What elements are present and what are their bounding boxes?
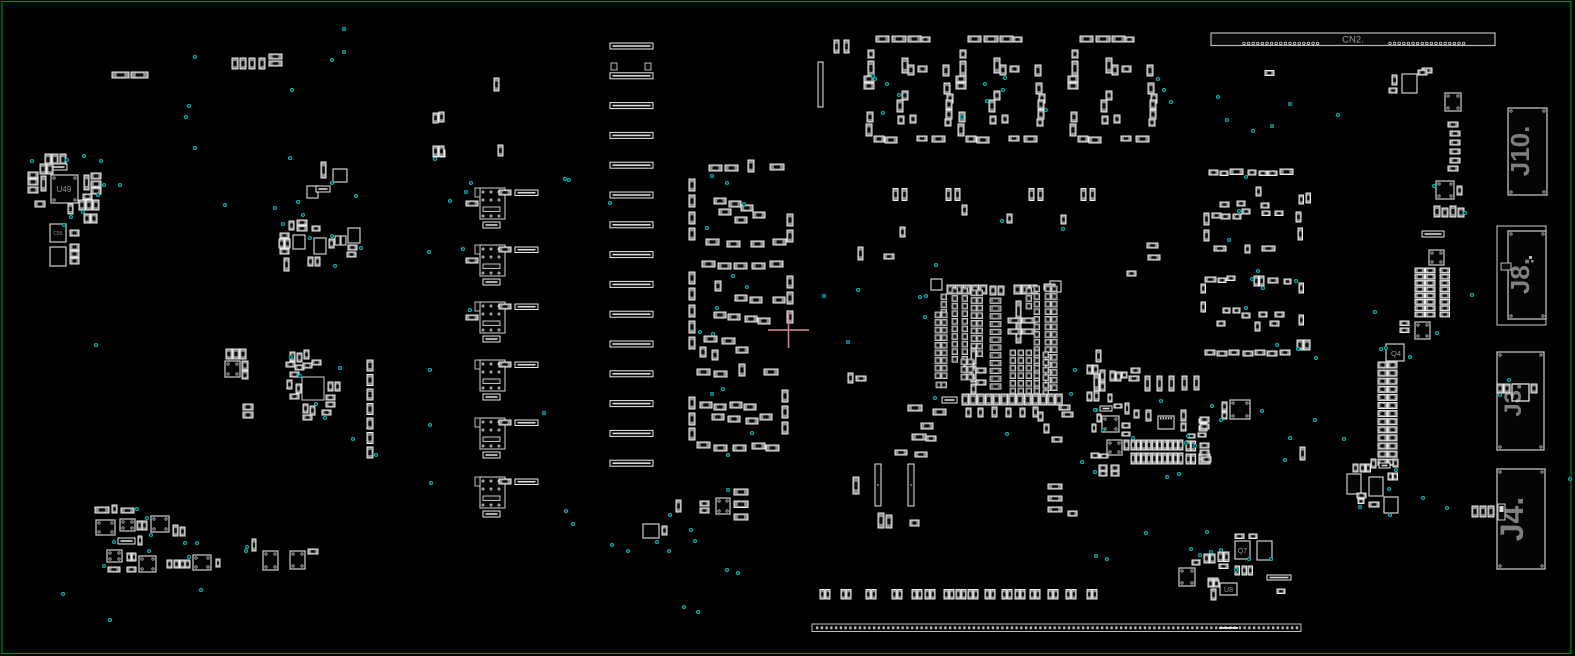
svg-text:Q4: Q4 (1391, 349, 1401, 358)
svg-text:CN2.: CN2. (1342, 35, 1364, 46)
svg-text:U8: U8 (1224, 587, 1233, 594)
svg-text:C55: C55 (53, 231, 62, 237)
svg-text:Q7: Q7 (1238, 548, 1247, 555)
svg-text:J10.: J10. (1505, 126, 1535, 177)
svg-text:U49: U49 (57, 185, 72, 194)
